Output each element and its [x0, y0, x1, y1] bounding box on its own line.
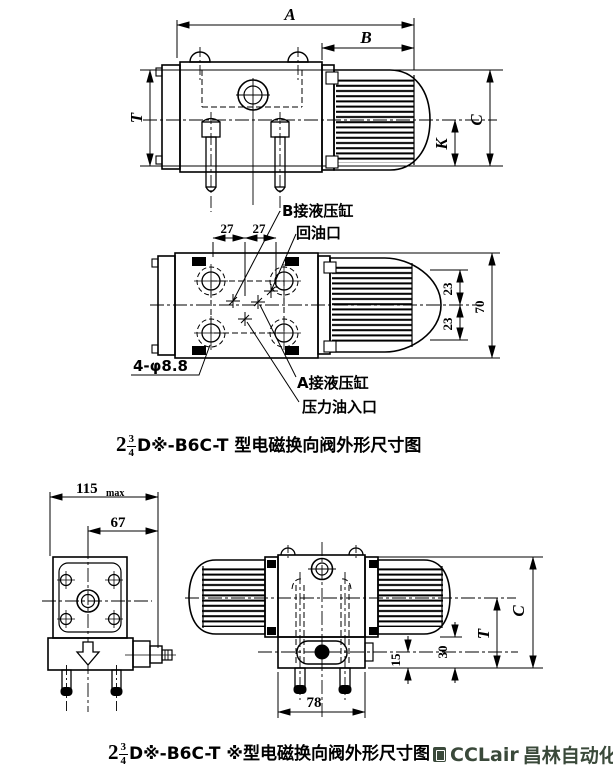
dim-label-c: C [467, 114, 486, 126]
label-mount-holes: 4-φ8.8 [133, 357, 188, 375]
left-coil-hatch [202, 567, 265, 627]
right-coil-hatch [378, 567, 443, 627]
caption-coefficient: 2 [108, 740, 119, 764]
caption-double-solenoid: 234D※-B6C-T ※型电磁换向阀外形尺寸图 [108, 739, 430, 767]
fraction-numerator: 3 [127, 434, 137, 447]
fraction-numerator: 3 [119, 742, 129, 755]
dim-label-30: 30 [435, 646, 450, 659]
side-view-single-solenoid: A B T C K [127, 5, 503, 212]
watermark-brand: CCLair [450, 744, 519, 766]
solenoid-plate-left [265, 557, 278, 637]
plan-view: 27 27 B接液压缸 回油口 4-φ8.8 A接液压缸 压力油入口 23 23… [131, 202, 500, 416]
watermark-company: 昌林自动化 [523, 741, 613, 768]
label-port-a: A接液压缸 [297, 374, 369, 392]
dim-label-23-lower: 23 [440, 317, 455, 331]
end-cap [162, 65, 180, 169]
dim-label-78: 78 [307, 695, 322, 711]
dim-label-c2: C [509, 605, 528, 617]
dim-label-b: B [359, 28, 371, 47]
valve-body-plan [175, 253, 318, 358]
port-a-mark [251, 295, 265, 309]
fraction-denominator: 4 [121, 755, 127, 767]
drawing-page: A B T C K [0, 0, 613, 779]
caption-model-text: D※-B6C-T ※型电磁换向阀外形尺寸图 [129, 744, 430, 764]
connector-step [150, 646, 162, 663]
dim-label-k: K [432, 137, 451, 151]
fraction-denominator: 4 [129, 447, 135, 459]
valve-body-double [278, 555, 365, 637]
solenoid-coil-hatch [332, 266, 412, 344]
screw-holes [57, 571, 123, 628]
label-return-port: 回油口 [296, 224, 341, 242]
dim-label-115: 115 [76, 481, 98, 497]
label-pressure-port: 压力油入口 [302, 398, 377, 416]
dim-label-a: A [283, 5, 295, 24]
solenoid-coil-hatch [336, 77, 414, 163]
dim-label-15: 15 [388, 653, 403, 667]
caption-model-text: D※-B6C-T 型电磁换向阀外形尺寸图 [137, 436, 421, 456]
double-solenoid-view: 78 15 30 T C [185, 542, 543, 718]
caption-coefficient: 2 [116, 432, 127, 456]
cc-logo-icon [433, 747, 446, 762]
dim-label-t: T [127, 112, 146, 123]
caption-fraction: 34 [119, 742, 129, 767]
caption-fraction: 34 [127, 434, 137, 459]
technical-drawing-svg: A B T C K [0, 0, 613, 779]
valve-body-front [53, 557, 127, 638]
dim-label-23-upper: 23 [440, 282, 455, 296]
dim-label-115-suffix: max [106, 488, 124, 499]
connector-body [133, 641, 150, 667]
label-port-b: B接液压缸 [282, 202, 353, 220]
solenoid-plate-right [365, 557, 378, 637]
watermark: CCLair 昌林自动化 [433, 741, 613, 768]
dim-label-70: 70 [472, 301, 487, 314]
mounting-holes [194, 264, 301, 350]
caption-single-solenoid: 234D※-B6C-T 型电磁换向阀外形尺寸图 [116, 431, 421, 459]
dim-label-27-left: 27 [221, 221, 235, 236]
base-port [315, 645, 330, 660]
dim-label-27-right: 27 [253, 221, 267, 236]
front-view: 115 max 67 [42, 481, 176, 714]
pressure-port-mark [238, 312, 252, 326]
dim-label-t2: T [474, 628, 493, 639]
dim-label-67: 67 [111, 515, 127, 531]
valve-body [180, 62, 322, 172]
flow-arrow [77, 642, 99, 665]
end-cap-plan [158, 256, 175, 355]
